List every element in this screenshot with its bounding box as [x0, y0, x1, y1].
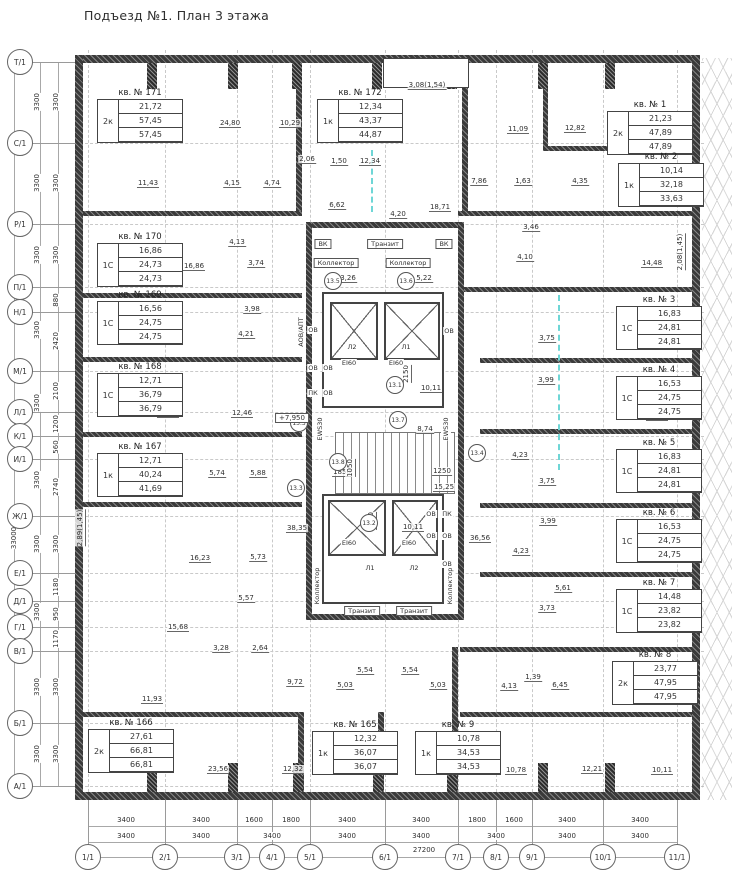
room-dimension-label: 11,93	[141, 695, 163, 704]
wall	[83, 712, 302, 717]
core-label: ОВ	[322, 389, 334, 397]
apartment-number: кв. № 7	[616, 578, 702, 588]
core-label: Л1	[400, 343, 411, 351]
room-dimension-label: 6,45	[551, 681, 569, 690]
axis-bubble-left: С/1	[7, 130, 33, 156]
room-dimension-label: 1,50	[330, 157, 348, 166]
apartment-area-table: 1С12,7136,7936,79	[97, 373, 183, 417]
apartment-rooms: 1к	[98, 454, 118, 496]
room-dimension-label: 3,99	[539, 517, 557, 526]
balcony-zigzag-strip	[702, 58, 732, 800]
apartment-area-value: 36,07	[333, 745, 398, 760]
core-label: Коллектор	[314, 258, 359, 268]
wall	[83, 502, 302, 507]
room-dimension-label: 24,80	[219, 119, 241, 128]
apartment-area-value: 16,86	[118, 243, 183, 258]
dimension-value: 1600	[504, 816, 524, 824]
pier	[605, 763, 615, 792]
axis-bubble-left: Р/1	[7, 211, 33, 237]
apartment-area-table: 2к27,6166,8166,81	[88, 729, 174, 773]
apartment-area-value: 24,75	[637, 390, 702, 405]
room-dimension-label: 4,21	[237, 330, 255, 339]
dimension-value: 3300	[51, 535, 61, 553]
elevator-shaft	[330, 302, 378, 360]
axis-bubble-bottom: 1/1	[75, 844, 101, 870]
node-number: 13.5	[324, 272, 342, 290]
dimension-value: 3300	[51, 174, 61, 192]
dimension-value: 3300	[32, 678, 42, 696]
apartment-area-table: 1к12,7140,2441,69	[97, 453, 183, 497]
core-label: EWS30	[315, 418, 325, 441]
room-dimension-label: 5,74	[208, 469, 226, 478]
axis-leader	[32, 573, 75, 574]
room-dimension-label: 4,23	[511, 451, 529, 460]
core-label: ОВ	[307, 326, 319, 334]
apartment-area-value: 12,71	[118, 373, 183, 388]
wall	[83, 432, 302, 437]
axis-bubble-bottom: 2/1	[152, 844, 178, 870]
apartment-area-value: 21,72	[118, 99, 183, 114]
apartment-area-table: 2к23,7747,9547,95	[612, 661, 698, 705]
apartment-card: кв. № 1701С16,8624,7324,73	[97, 232, 183, 287]
apartment-number: кв. № 169	[97, 290, 183, 300]
dimension-value: 3400	[411, 816, 431, 824]
apartment-number: кв. № 9	[415, 720, 501, 730]
room-dimension-label: 10,11	[420, 384, 442, 393]
dimension-value: 3400	[486, 832, 506, 840]
apartment-card: кв. № 12к21,2347,8947,89	[607, 100, 693, 155]
apartment-number: кв. № 8	[612, 650, 698, 660]
node-number: 13.4	[468, 444, 486, 462]
axis-leader	[32, 371, 75, 372]
dimension-value: 3300	[32, 471, 42, 489]
apartment-number: кв. № 5	[616, 438, 702, 448]
room-dimension-label: 16,86	[183, 262, 205, 271]
apartment-area-value: 57,45	[118, 113, 183, 128]
room-dimension-label: 9,72	[286, 678, 304, 687]
axis-bubble-left: А/1	[7, 773, 33, 799]
apartment-card: кв. № 61С16,5324,7524,75	[616, 508, 702, 563]
apartment-area-value: 12,32	[333, 731, 398, 746]
apartment-areas: 16,5624,7524,75	[118, 302, 182, 344]
room-dimension-label: 10,11	[651, 766, 673, 775]
room-dimension-label: 5,88	[249, 469, 267, 478]
apartment-area-table: 2к21,7257,4557,45	[97, 99, 183, 143]
apartment-area-value: 24,81	[637, 477, 702, 492]
elevator-shaft	[384, 302, 440, 360]
axis-bubble-bottom: 3/1	[224, 844, 250, 870]
apartment-area-value: 41,69	[118, 481, 183, 496]
apartment-card: кв. № 1681С12,7136,7936,79	[97, 362, 183, 417]
pier	[228, 763, 238, 792]
room-dimension-label: 4,74	[263, 179, 281, 188]
apartment-area-table: 1С16,8324,8124,81	[616, 306, 702, 350]
axis-leader	[532, 800, 533, 845]
room-dimension-label: 5,54	[401, 666, 419, 675]
dimension-value: 3400	[116, 832, 136, 840]
dimension-value: 3400	[116, 816, 136, 824]
apartment-number: кв. № 168	[97, 362, 183, 372]
apartment-area-value: 27,61	[109, 729, 174, 744]
room-dimension-label: 12,34	[359, 157, 381, 166]
wall	[460, 712, 692, 717]
axis-bubble-left: Д/1	[7, 588, 33, 614]
apartment-area-value: 23,77	[633, 661, 698, 676]
axis-bubble-left: И/1	[7, 446, 33, 472]
core-label: ОВ	[441, 532, 453, 540]
apartment-area-table: 1к12,3236,0736,07	[312, 731, 398, 775]
core-label: Коллектор	[445, 568, 455, 605]
apartment-area-value: 36,79	[118, 401, 183, 416]
dimension-line	[88, 842, 677, 843]
apartment-card: кв. № 31С16,8324,8124,81	[616, 295, 702, 350]
apartment-area-value: 23,82	[637, 603, 702, 618]
apartment-area-value: 23,82	[637, 617, 702, 632]
room-dimension-label: 16,23	[189, 554, 211, 563]
core-label: EI60	[341, 359, 357, 367]
pier	[147, 63, 157, 89]
apartment-area-value: 24,75	[637, 533, 702, 548]
axis-leader	[32, 436, 75, 437]
axis-leader	[32, 516, 75, 517]
apartment-area-table: 1к10,1432,1833,63	[618, 163, 704, 207]
apartment-area-table: 1С16,8324,8124,81	[616, 449, 702, 493]
apartment-areas: 27,6166,8166,81	[109, 730, 173, 772]
apartment-rooms: 1С	[98, 302, 118, 344]
apartment-area-value: 66,81	[109, 757, 174, 772]
apartment-rooms: 1к	[313, 732, 333, 774]
apartment-card: кв. № 91к10,7834,5334,53	[415, 720, 501, 775]
axis-bubble-left: В/1	[7, 638, 33, 664]
pier	[538, 63, 548, 89]
apartment-number: кв. № 6	[616, 508, 702, 518]
apartment-areas: 16,8324,8124,81	[637, 450, 701, 492]
room-dimension-label: 2,06	[298, 155, 316, 164]
room-dimension-label: 5,03	[429, 681, 447, 690]
apartment-area-value: 24,75	[118, 315, 183, 330]
dimension-value: 3400	[557, 832, 577, 840]
dimension-value: 3300	[32, 246, 42, 264]
apartment-areas: 16,5324,7524,75	[637, 377, 701, 419]
apartment-card: кв. № 1712к21,7257,4557,45	[97, 88, 183, 143]
grid-line-vertical	[385, 50, 386, 802]
dimension-value: 3400	[337, 816, 357, 824]
apartment-area-value: 16,83	[637, 449, 702, 464]
axis-leader	[458, 800, 459, 845]
room-dimension-label: 15,68	[167, 623, 189, 632]
axis-leader	[237, 800, 238, 845]
apartment-area-value: 24,73	[118, 257, 183, 272]
wall	[458, 222, 464, 620]
room-dimension-label: 3,28	[212, 644, 230, 653]
dimension-value: 950	[51, 607, 61, 620]
core-label: Л2	[408, 564, 419, 572]
node-number: 13.8	[329, 453, 347, 471]
room-dimension-label: 4,10	[516, 253, 534, 262]
apartment-area-value: 16,56	[118, 301, 183, 316]
apartment-areas: 12,3443,3744,87	[338, 100, 402, 142]
wall	[83, 211, 302, 216]
room-dimension-label: 10,11	[402, 523, 424, 532]
apartment-rooms: 1С	[98, 374, 118, 416]
room-dimension-label: 12,32	[282, 765, 304, 774]
room-dimension-label: 5,57	[237, 594, 255, 603]
dimension-value: 3300	[51, 246, 61, 264]
apartment-area-value: 57,45	[118, 127, 183, 142]
apartment-area-value: 16,53	[637, 519, 702, 534]
room-dimension-label: 4,15	[223, 179, 241, 188]
dimension-value: 3300	[32, 93, 42, 111]
wall	[480, 429, 692, 434]
apartment-rooms: 1С	[617, 307, 637, 349]
apartment-area-value: 16,53	[637, 376, 702, 391]
grid-line-vertical	[603, 50, 604, 802]
room-dimension-label: 18,71	[429, 203, 451, 212]
apartment-area-value: 24,81	[637, 320, 702, 335]
apartment-area-table: 1С16,8624,7324,73	[97, 243, 183, 287]
axis-bubble-left: Л/1	[7, 399, 33, 425]
apartment-area-value: 40,24	[118, 467, 183, 482]
room-dimension-label: 3,08(1,54)	[408, 81, 447, 90]
axis-bubble-bottom: 9/1	[519, 844, 545, 870]
axis-leader	[32, 143, 75, 144]
apartment-number: кв. № 3	[616, 295, 702, 305]
apartment-area-value: 21,23	[628, 111, 693, 126]
room-dimension-label: 6,62	[328, 201, 346, 210]
core-label: EI60	[401, 539, 417, 547]
dimension-value: 3400	[262, 832, 282, 840]
floor-plan-canvas: Подъезд №1. План 3 этажа Т/1С/1Р/1П/1Н/1…	[0, 0, 734, 880]
grid-line-vertical	[237, 50, 238, 802]
core-label: ОВ	[322, 364, 334, 372]
core-label: Л2	[346, 343, 357, 351]
core-label: EI60	[388, 359, 404, 367]
apartment-areas: 21,2347,8947,89	[628, 112, 692, 154]
utility-line	[558, 295, 560, 470]
drawing-title: Подъезд №1. План 3 этажа	[84, 8, 269, 23]
apartment-areas: 16,8324,8124,81	[637, 307, 701, 349]
apartment-rooms: 1С	[617, 450, 637, 492]
grid-line-vertical	[88, 50, 89, 802]
wall	[75, 55, 83, 800]
room-dimension-label: 23,56	[207, 765, 229, 774]
dimension-value: 3300	[32, 321, 42, 339]
apartment-areas: 10,7834,5334,53	[436, 732, 500, 774]
axis-bubble-bottom: 11/1	[664, 844, 690, 870]
dimension-value: 3300	[32, 394, 42, 412]
grid-line-vertical	[165, 50, 166, 802]
core-label: Транзит	[367, 239, 403, 249]
apartment-area-value: 24,75	[637, 547, 702, 562]
dimension-value: 3400	[337, 832, 357, 840]
axis-leader	[32, 459, 75, 460]
axis-leader	[677, 800, 678, 845]
grid-line-vertical	[272, 50, 273, 802]
apartment-areas: 10,1432,1833,63	[639, 164, 703, 206]
room-dimension-label: 4,20	[389, 210, 407, 219]
room-dimension-label: 4,35	[571, 177, 589, 186]
dimension-value: 1180	[51, 578, 61, 596]
grid-line-vertical	[532, 50, 533, 802]
apartment-area-value: 24,75	[637, 404, 702, 419]
wall	[480, 358, 692, 363]
dimension-value: 3300	[32, 603, 42, 621]
apartment-rooms: 2к	[89, 730, 109, 772]
axis-bubble-left: Е/1	[7, 560, 33, 586]
wall	[460, 287, 692, 292]
apartment-area-table: 1к10,7834,5334,53	[415, 731, 501, 775]
room-dimension-label: 1,63	[514, 177, 532, 186]
dimension-value: 3300	[32, 174, 42, 192]
axis-bubble-left: Н/1	[7, 299, 33, 325]
core-label: Транзит	[396, 606, 432, 616]
axis-leader	[32, 62, 75, 63]
dimension-value: 3400	[191, 832, 211, 840]
room-dimension-label: 4,13	[500, 682, 518, 691]
room-dimension-label: 4,13	[228, 238, 246, 247]
axis-bubble-bottom: 8/1	[483, 844, 509, 870]
apartment-card: кв. № 71С14,4823,8223,82	[616, 578, 702, 633]
apartment-area-value: 36,79	[118, 387, 183, 402]
room-dimension-label: 12,82	[564, 124, 586, 133]
room-dimension-label: 1250	[432, 467, 452, 476]
apartment-area-value: 34,53	[436, 759, 501, 774]
dimension-value: 2420	[51, 332, 61, 350]
axis-leader	[32, 287, 75, 288]
apartment-area-value: 32,18	[639, 177, 704, 192]
axis-leader	[165, 800, 166, 845]
apartment-area-value: 34,53	[436, 745, 501, 760]
apartment-rooms: 1С	[617, 590, 637, 632]
axis-bubble-bottom: 5/1	[297, 844, 323, 870]
room-dimension-label: 15,25	[433, 483, 455, 492]
apartment-area-value: 47,95	[633, 675, 698, 690]
apartment-card: кв. № 21к10,1432,1833,63	[618, 152, 704, 207]
room-dimension-label: 5,73	[249, 553, 267, 562]
axis-bubble-left: Г/1	[7, 614, 33, 640]
wall	[480, 572, 692, 577]
node-number: 13.2	[360, 514, 378, 532]
core-label: ОВ	[443, 327, 455, 335]
axis-leader	[603, 800, 604, 845]
apartment-areas: 12,7136,7936,79	[118, 374, 182, 416]
room-dimension-label: 5,54	[356, 666, 374, 675]
apartment-rooms: 1к	[318, 100, 338, 142]
dimension-value: 3400	[191, 816, 211, 824]
room-dimension-label: 1,39	[524, 673, 542, 682]
axis-leader	[32, 412, 75, 413]
elevator-shaft	[328, 500, 386, 556]
axis-bubble-left: Т/1	[7, 49, 33, 75]
apartment-area-table: 1С14,4823,8223,82	[616, 589, 702, 633]
dimension-value: 3300	[51, 93, 61, 111]
axis-leader	[385, 800, 386, 845]
axis-leader	[88, 800, 89, 845]
apartment-area-table: 2к21,2347,8947,89	[607, 111, 693, 155]
axis-leader	[32, 312, 75, 313]
apartment-areas: 21,7257,4557,45	[118, 100, 182, 142]
pier	[372, 63, 382, 89]
room-dimension-label: 2,89(1,45)	[75, 510, 86, 547]
dimension-value: 880	[51, 293, 61, 306]
axis-bubble-left: Б/1	[7, 710, 33, 736]
apartment-number: кв. № 166	[88, 718, 174, 728]
room-dimension-label: 10,78	[505, 766, 527, 775]
core-label: Транзит	[344, 606, 380, 616]
room-dimension-label: 38,35	[286, 524, 308, 533]
room-dimension-label: 10,29	[279, 119, 301, 128]
room-dimension-label: 8,74	[416, 425, 434, 434]
apartment-rooms: 1к	[619, 164, 639, 206]
room-dimension-label: 3,75	[538, 477, 556, 486]
apartment-number: кв. № 170	[97, 232, 183, 242]
core-label: EWS30	[441, 418, 451, 441]
apartment-area-table: 1к12,3443,3744,87	[317, 99, 403, 143]
apartment-areas: 14,4823,8223,82	[637, 590, 701, 632]
apartment-area-value: 16,83	[637, 306, 702, 321]
apartment-area-value: 10,78	[436, 731, 501, 746]
room-dimension-label: 3,46	[522, 223, 540, 232]
apartment-area-value: 47,89	[628, 125, 693, 140]
dimension-value: 1200	[51, 415, 61, 433]
apartment-number: кв. № 4	[616, 365, 702, 375]
axis-bubble-left: П/1	[7, 274, 33, 300]
apartment-area-value: 33,63	[639, 191, 704, 206]
apartment-card: кв. № 41С16,5324,7524,75	[616, 365, 702, 420]
room-dimension-label: 7,86	[470, 177, 488, 186]
wall	[75, 792, 700, 800]
dimension-value: 2740	[51, 478, 61, 496]
wall	[306, 614, 464, 620]
dimension-value: 2100	[51, 382, 61, 400]
room-dimension-label: 12,46	[231, 409, 253, 418]
dimension-value: 1800	[281, 816, 301, 824]
axis-bubble-bottom: 4/1	[259, 844, 285, 870]
dimension-value: 3300	[32, 745, 42, 763]
axis-bubble-left: Ж/1	[7, 503, 33, 529]
apartment-card: кв. № 1662к27,6166,8166,81	[88, 718, 174, 773]
elevation-mark: +7,950	[275, 413, 309, 423]
apartment-rooms: 2к	[608, 112, 628, 154]
axis-leader	[32, 786, 75, 787]
apartment-areas: 16,8624,7324,73	[118, 244, 182, 286]
apartment-card: кв. № 1651к12,3236,0736,07	[312, 720, 398, 775]
apartment-area-value: 12,34	[338, 99, 403, 114]
axis-bubble-bottom: 7/1	[445, 844, 471, 870]
axis-leader	[32, 651, 75, 652]
core-label: EI60	[341, 539, 357, 547]
apartment-area-table: 1С16,5624,7524,75	[97, 301, 183, 345]
dimension-value: 3400	[630, 816, 650, 824]
apartment-areas: 23,7747,9547,95	[633, 662, 697, 704]
apartment-area-value: 36,07	[333, 759, 398, 774]
core-label: ОВ	[425, 510, 437, 518]
room-dimension-label: 11,43	[137, 179, 159, 188]
room-dimension-label: 3,73	[538, 604, 556, 613]
core-label: ОВ	[425, 532, 437, 540]
dimension-total: 27200	[412, 846, 436, 854]
room-dimension-label: 4,23	[512, 547, 530, 556]
node-number: 13.1	[386, 376, 404, 394]
apartment-area-value: 24,81	[637, 463, 702, 478]
apartment-rooms: 1С	[617, 520, 637, 562]
apartment-area-value: 43,37	[338, 113, 403, 128]
dimension-value: 3300	[51, 678, 61, 696]
core-label: ПК	[441, 510, 453, 518]
wall	[306, 222, 464, 228]
dimension-value: 3300	[51, 745, 61, 763]
apartment-areas: 16,5324,7524,75	[637, 520, 701, 562]
